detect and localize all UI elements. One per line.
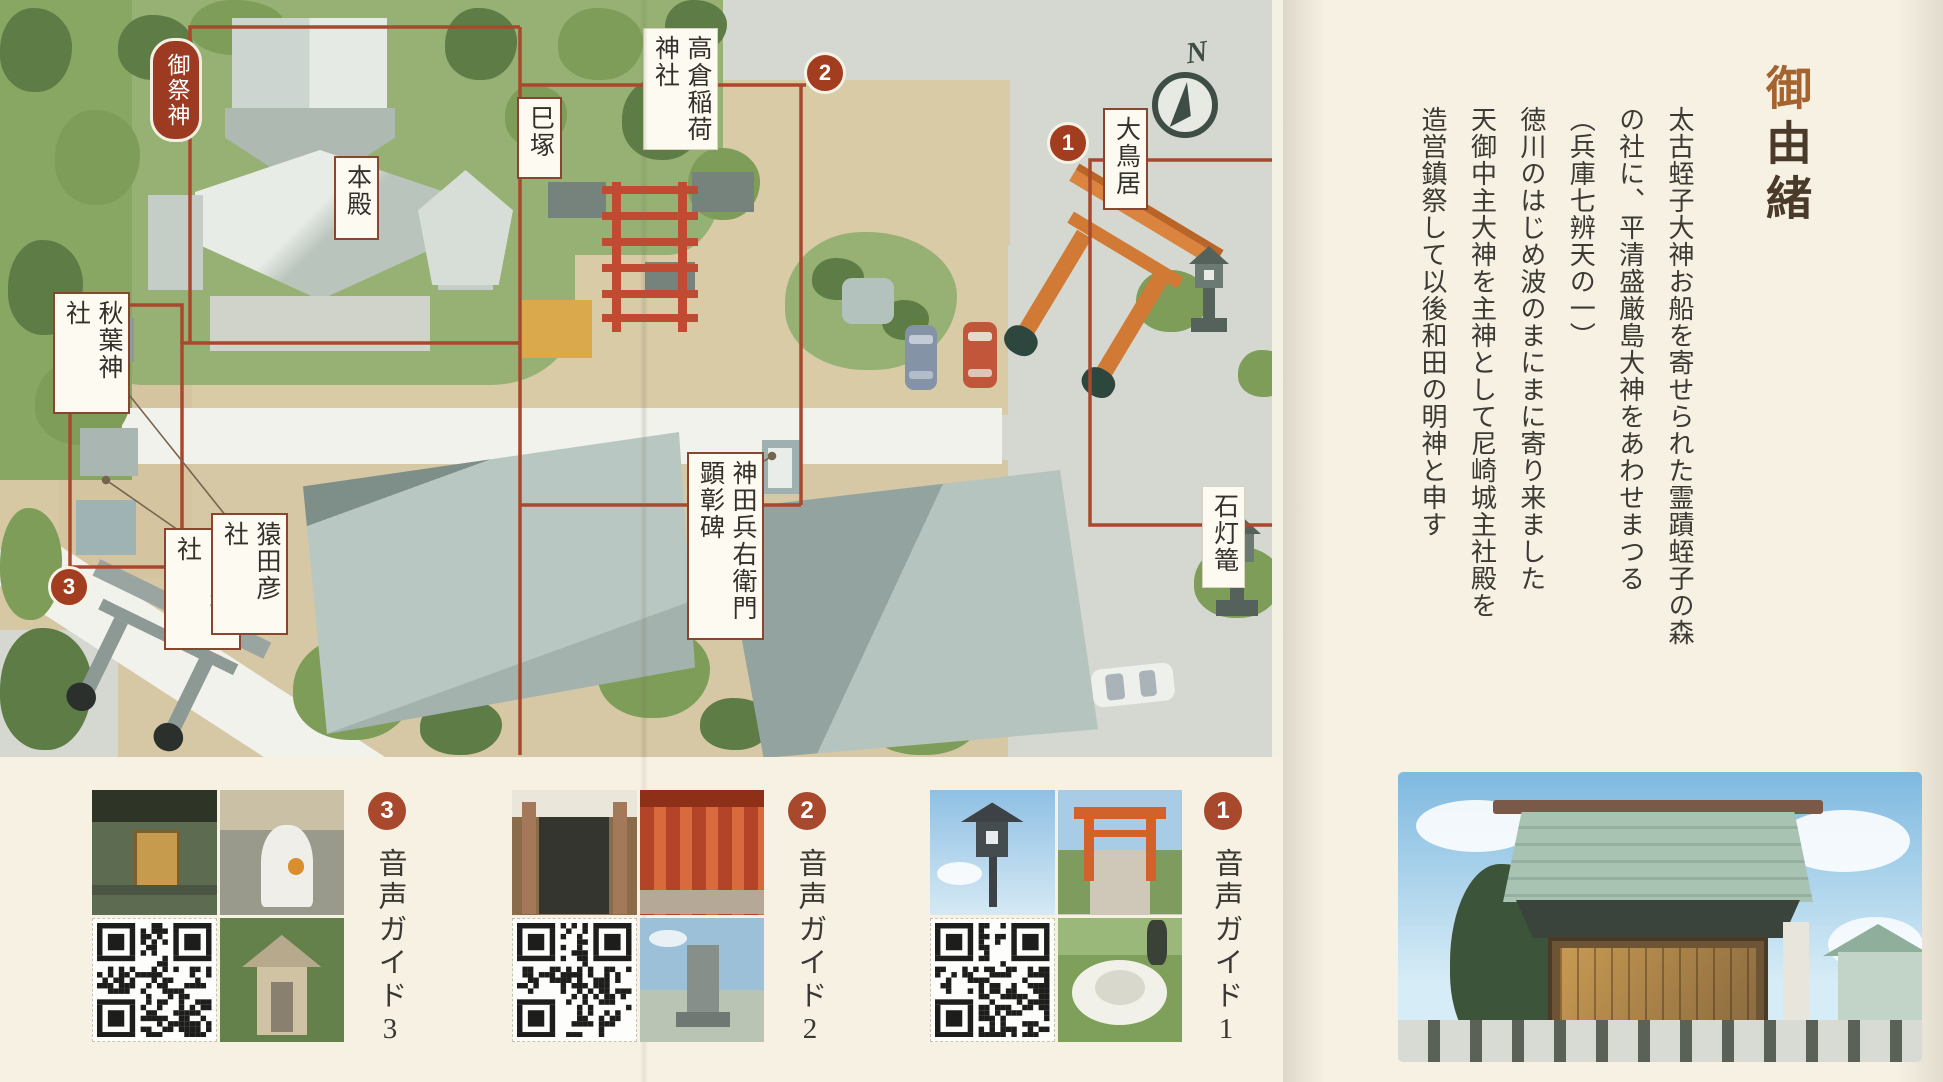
audio-guide-2-photos [512, 790, 764, 1042]
compass-n-label: N [1184, 35, 1210, 72]
history-title: 御由緒 [1752, 64, 1818, 264]
label-akiba-jinja: 秋葉神社 [53, 292, 130, 414]
brochure-scan: N 御祭神 本殿 高倉稲荷神社 巳塚 秋葉神社 宮比神社 猿田彦社 神田兵右衛門… [0, 0, 1943, 1082]
history-line: （兵庫七辨天の一） [1556, 106, 1605, 654]
label-ishidoro: 石灯篭 [1202, 486, 1245, 588]
history-title-accent: 御 [1760, 64, 1811, 119]
map-marker-3: 3 [48, 566, 90, 608]
gosaijin-badge: 御祭神 [150, 38, 202, 142]
history-line: 徳川のはじめ波のまにまに寄り来ました [1506, 106, 1555, 654]
map-marker-2: 2 [804, 52, 846, 94]
audio-guide-2-number: 2 [786, 790, 828, 832]
history-line: の社に、平清盛厳島大神をあわせまつる [1605, 106, 1654, 654]
audio-guide-3-photos [92, 790, 344, 1042]
label-sarutahiko-sha: 猿田彦社 [211, 513, 288, 635]
label-honden: 本殿 [334, 156, 379, 240]
history-text: 太古蛭子大神お船を寄せられた霊蹟蛭子の森 の社に、平清盛厳島大神をあわせまつる … [1402, 106, 1704, 654]
gosaijin-badge-label: 御祭神 [159, 53, 193, 128]
photo-small-shrine [220, 918, 345, 1043]
map-marker-1: 1 [1047, 122, 1089, 164]
photo-grand-torii [1058, 790, 1183, 915]
photo-torii-tunnel [640, 790, 765, 915]
photo-shrine-interior [92, 790, 217, 915]
audio-guide-3-number: 3 [366, 790, 408, 832]
history-line: 天御中主大神を主神として尼崎城主社殿を [1457, 106, 1506, 654]
qr-code [92, 918, 217, 1043]
photo-priest-at-shrine [220, 790, 345, 915]
audio-guide-3-label: 音声ガイド3 [369, 848, 411, 1063]
compass-rose-icon [1152, 72, 1218, 138]
label-takakura-inari: 高倉稲荷神社 [643, 28, 718, 150]
qr-code [930, 918, 1055, 1043]
photo-shrine-entrance [1398, 772, 1922, 1062]
shrine-grounds-map: N 御祭神 本殿 高倉稲荷神社 巳塚 秋葉神社 宮比神社 猿田彦社 神田兵右衛門… [0, 0, 1283, 757]
qr-code [512, 918, 637, 1043]
page-gutter-shadow [1283, 0, 1325, 1082]
label-otorii: 大鳥居 [1103, 108, 1148, 210]
audio-guide-1-photos [930, 790, 1182, 1042]
history-line: 造営鎮祭して以後和田の明神と申す [1408, 106, 1457, 654]
photo-shrine-gate [512, 790, 637, 915]
label-mizuka: 巳塚 [517, 97, 562, 179]
photo-stone-monument [640, 918, 765, 1043]
photo-metal-lantern [930, 790, 1055, 915]
history-title-rest: 由緒 [1760, 119, 1811, 229]
history-line: 太古蛭子大神お船を寄せられた霊蹟蛭子の森 [1655, 106, 1704, 654]
audio-guide-1-number: 1 [1202, 790, 1244, 832]
photo-white-sculpture [1058, 918, 1183, 1043]
label-kanda-kenshohi: 神田兵右衛門顕彰碑 [687, 452, 764, 640]
audio-guide-1-label: 音声ガイド1 [1205, 848, 1247, 1063]
audio-guide-2-label: 音声ガイド2 [789, 848, 831, 1063]
